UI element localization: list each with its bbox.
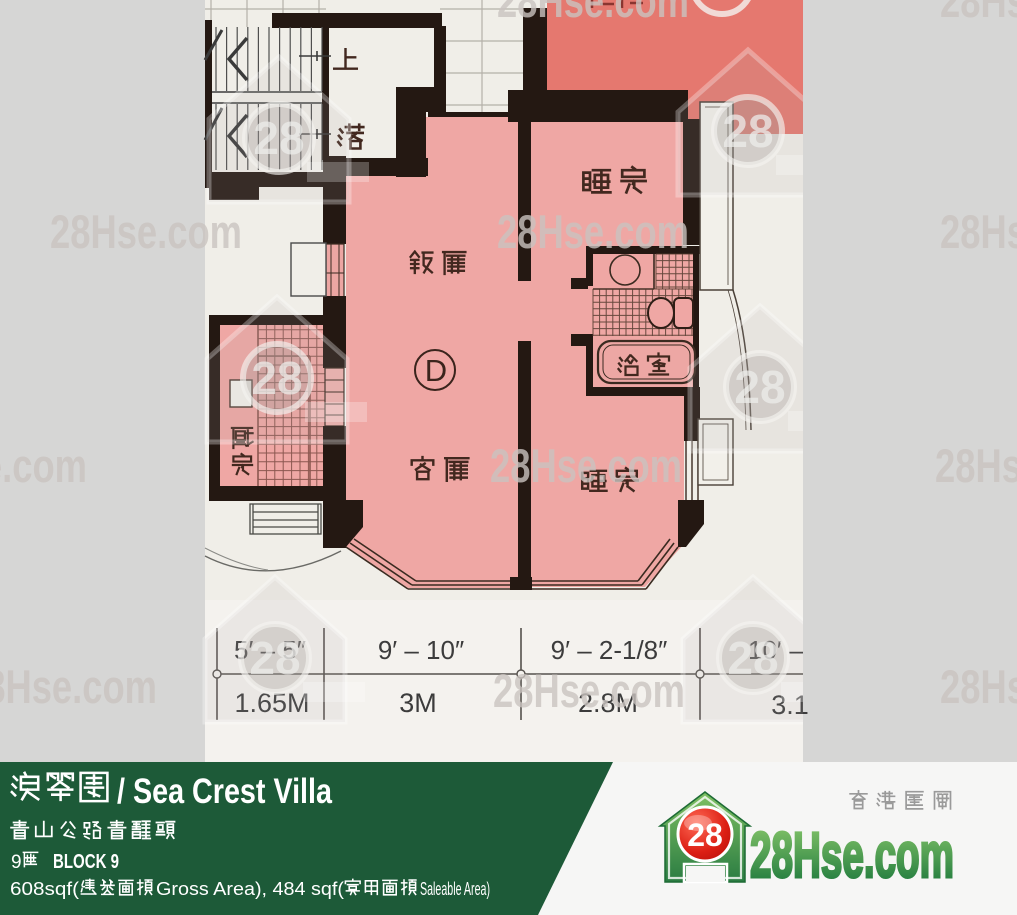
svg-text:28Hse.com: 28Hse.com	[50, 205, 242, 258]
svg-text:28Hse.com: 28Hse.com	[0, 439, 87, 492]
svg-text:9′ – 10″: 9′ – 10″	[378, 635, 464, 665]
svg-text:28Hse.com: 28Hse.com	[497, 205, 689, 258]
svg-text:3M: 3M	[399, 688, 437, 718]
svg-text:28Hse.com: 28Hse.com	[940, 205, 1017, 258]
svg-text:Saleable Area): Saleable Area)	[420, 879, 490, 899]
svg-text:Gross Area), 484 sqf(: Gross Area), 484 sqf(	[156, 879, 344, 899]
svg-text:28: 28	[249, 632, 300, 684]
svg-text:28Hse.com: 28Hse.com	[750, 819, 954, 891]
svg-text:28Hse.com: 28Hse.com	[490, 439, 682, 492]
svg-text:28Hse.com: 28Hse.com	[497, 0, 689, 27]
svg-text:28Hse.com: 28Hse.com	[935, 439, 1017, 492]
svg-text:28: 28	[722, 105, 773, 157]
svg-text:28Hse.com: 28Hse.com	[0, 660, 157, 713]
svg-text:/ Sea Crest Villa: / Sea Crest Villa	[117, 772, 332, 811]
svg-text:9′ – 2-1/8″: 9′ – 2-1/8″	[551, 635, 668, 665]
svg-text:BLOCK 9: BLOCK 9	[53, 851, 119, 873]
svg-text:28: 28	[734, 361, 785, 413]
svg-text:D: D	[425, 353, 447, 388]
svg-text:9: 9	[11, 852, 22, 873]
svg-text:28Hse.com: 28Hse.com	[493, 664, 685, 717]
svg-text:608sqf(: 608sqf(	[10, 879, 79, 899]
svg-text:28: 28	[687, 817, 723, 853]
svg-text:28Hse.com: 28Hse.com	[940, 660, 1017, 713]
svg-text:28: 28	[253, 112, 304, 164]
svg-text:28: 28	[727, 632, 778, 684]
svg-text:28: 28	[251, 352, 302, 404]
svg-text:28Hse.com: 28Hse.com	[940, 0, 1017, 27]
